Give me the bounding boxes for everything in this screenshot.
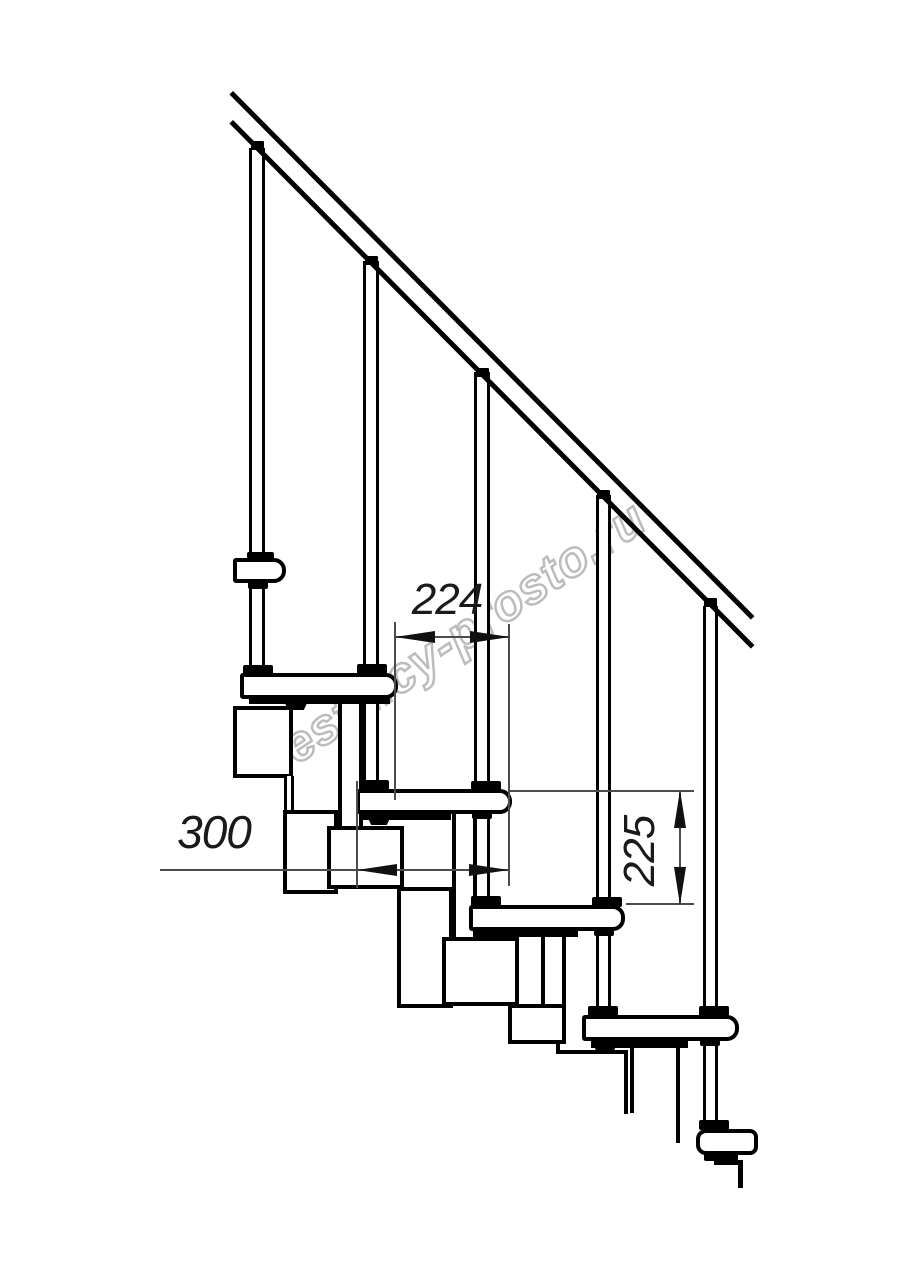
connector-b1-bracket-top <box>247 552 274 561</box>
dim-300-arrow-right <box>469 864 509 876</box>
bottom-step-outline-v <box>738 1160 743 1188</box>
connector-b4-tread4 <box>588 1006 618 1016</box>
stringer-module-top <box>233 706 293 778</box>
tread-2-foot <box>366 814 392 825</box>
dim-225-arrow-up <box>674 790 686 828</box>
tread-1-shadow <box>249 697 390 704</box>
connector-b3-tread3 <box>471 896 501 906</box>
tread-3 <box>469 905 625 931</box>
dim-224-label: 224 <box>407 578 487 622</box>
dim-224-arrow-left <box>395 631 435 643</box>
connector-b5-bracket <box>699 1120 729 1130</box>
dim-300-label: 300 <box>172 810 256 854</box>
dim-225-label: 225 <box>618 809 664 893</box>
stringer-column-3 <box>541 928 566 1008</box>
connector-b3-tread2 <box>471 781 501 791</box>
connector-b1-tread1 <box>243 665 273 675</box>
stringer-module-h2 <box>442 937 519 1006</box>
connector-b5-tread4 <box>699 1006 729 1016</box>
under-tread4-line-1 <box>630 1045 634 1113</box>
staircase-drawing: lestnicy-prosto.ru <box>0 0 914 1280</box>
bottom-bracket-underside <box>704 1151 738 1161</box>
dim-300-line <box>160 869 509 871</box>
dim-225-arrow-down <box>674 867 686 905</box>
connector-b5-tread4-under <box>700 1040 720 1046</box>
tread-2 <box>356 789 512 814</box>
baluster-2 <box>363 261 379 791</box>
stringer-module-v3 <box>508 1004 566 1044</box>
connector-b2-tread1 <box>357 664 387 675</box>
handrail-upper-line <box>230 91 755 619</box>
tread-4 <box>582 1015 739 1041</box>
dim-224-arrow-right <box>470 631 510 643</box>
under-tread4-line-2 <box>676 1043 680 1143</box>
baluster-4 <box>596 495 611 1018</box>
tread-1 <box>240 673 398 699</box>
connector-b4-tread3 <box>592 897 622 907</box>
dim-225-extension-top <box>510 790 694 792</box>
baluster-1 <box>249 148 265 676</box>
dim-224-extension-left <box>394 622 396 800</box>
connector-b4-tread3-under <box>594 930 614 936</box>
connector-b1-bracket-bottom <box>248 581 268 589</box>
connector-b3-tread2-under <box>472 813 492 819</box>
dim-300-arrow-left <box>357 864 397 876</box>
stringer-step-outline-2 <box>624 1052 628 1114</box>
dim-224-extension-right <box>508 624 510 886</box>
stringer-module-h1 <box>327 826 404 889</box>
connector-b2-tread2 <box>359 780 389 790</box>
top-bracket-plate <box>233 558 286 583</box>
baluster-5 <box>703 606 718 1132</box>
